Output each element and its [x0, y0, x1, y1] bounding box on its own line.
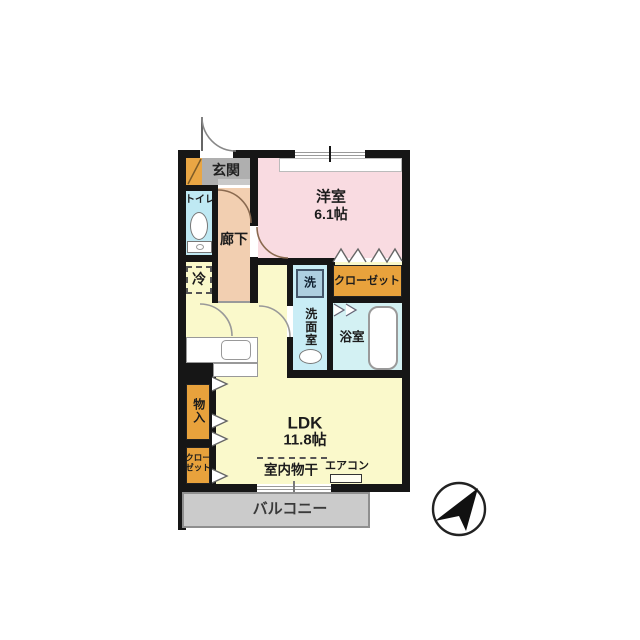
hallway-label: 廊下 [220, 232, 248, 248]
balcony-label: バルコニー [253, 502, 328, 519]
western-door-opening [250, 226, 258, 257]
aircon-unit-box [330, 474, 362, 483]
floor-plan: 玄関 トイレ 廊下 洋室 6.1帖 クローゼット 洗 洗面室 浴室 冷 LDK … [0, 0, 640, 640]
closet-right-label: クローゼット [334, 275, 400, 287]
closet-left-label: クロー ゼット [185, 453, 211, 472]
western-room-size-label: 6.1帖 [314, 207, 347, 223]
shoe-cabinet [186, 158, 202, 185]
indoor-drying-line [257, 457, 327, 459]
ldk-label: LDK [288, 413, 323, 432]
entrance-door-opening [200, 150, 233, 158]
hallway-threshold [218, 301, 250, 303]
window-sill-strip [279, 158, 402, 172]
washroom-sink-icon [299, 349, 322, 364]
wall-bath-bottom [287, 370, 410, 378]
entrance-label: 玄関 [212, 163, 240, 179]
storage-top-wall [186, 377, 213, 384]
outer-wall-right [402, 150, 410, 492]
washroom-label: 洗面室 [303, 308, 316, 347]
window-tick [329, 146, 331, 162]
aircon-label: エアコン [325, 460, 369, 472]
toilet-label: トイレ [185, 194, 215, 205]
bathtub-icon [368, 306, 398, 370]
north-arrow-icon [435, 488, 478, 531]
kitchen-counter-lower [213, 363, 258, 377]
storage-label: 物入 [191, 398, 204, 424]
ldk-size-label: 11.8帖 [283, 433, 326, 450]
western-room-label: 洋室 [316, 190, 346, 207]
entrance-door-arc [202, 117, 236, 151]
closet-left-label-line2: ゼット [185, 463, 211, 473]
refrigerator-label: 冷 [192, 272, 206, 288]
toilet-bowl-icon [190, 212, 208, 240]
kitchen-sink [221, 340, 251, 360]
storage-mid-wall [186, 440, 210, 447]
washroom-door-opening [287, 306, 293, 337]
indoor-drying-label: 室内物干 [264, 462, 318, 477]
storage-right-wall [210, 377, 216, 484]
wall-closet-bath [327, 297, 410, 303]
bathroom-label: 浴室 [339, 330, 364, 344]
kitchen-wall [186, 363, 213, 377]
compass-circle-icon [433, 483, 485, 535]
washer-label: 洗 [304, 276, 316, 289]
wall-toilet-bottom [184, 255, 218, 262]
wall-washroom-right [327, 262, 333, 378]
entrance-step [218, 179, 250, 185]
toilet-tank-basin-icon [196, 244, 204, 250]
